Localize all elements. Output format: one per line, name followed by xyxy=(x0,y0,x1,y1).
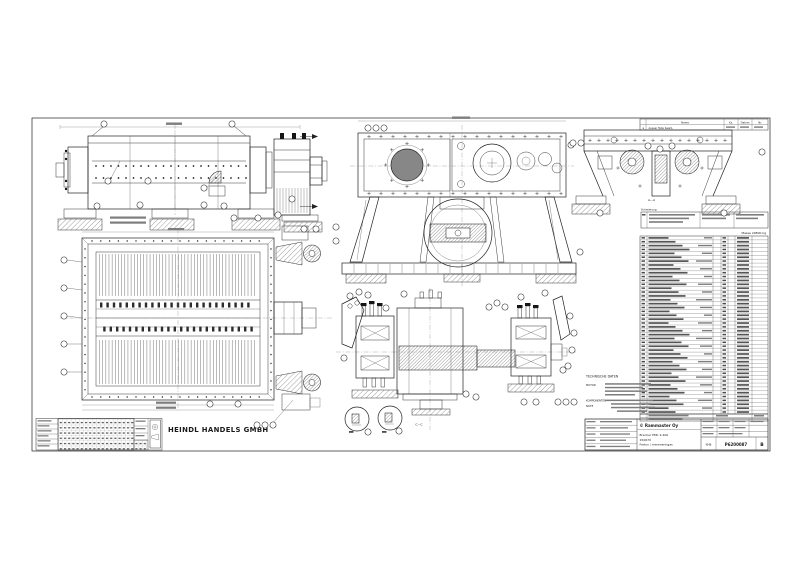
view-section-aa: Name Kz. Datum Nr. a Ausser Teile bearb. xyxy=(572,119,768,235)
section-label-cc: C—C xyxy=(415,423,422,427)
view-direction-arrow xyxy=(300,134,318,209)
foundation-pad xyxy=(572,204,610,214)
bearing-housing xyxy=(511,318,551,376)
detail-circle xyxy=(345,407,369,433)
revision-col-name: Name xyxy=(681,120,689,124)
detail-label xyxy=(349,431,354,433)
shaft-opening xyxy=(391,149,423,181)
foundation-pad xyxy=(58,219,102,230)
foundation-pad xyxy=(412,409,450,415)
view-plan xyxy=(60,226,332,410)
product-title: Brecher PMC 2-400 xyxy=(640,433,669,437)
revision-col-datum: Datum xyxy=(741,120,750,124)
notes-note-label: NOTE xyxy=(586,404,594,408)
dimension-text xyxy=(156,402,176,404)
foundation-pad xyxy=(508,384,554,392)
revision-letter: a xyxy=(643,127,645,130)
dimension-text xyxy=(452,117,470,119)
tolerance-grid xyxy=(58,419,134,451)
drawing-number: P6200087 xyxy=(725,442,748,447)
opening-dimension-text xyxy=(110,217,146,219)
dimension-text xyxy=(156,407,176,409)
rotor-shaft xyxy=(477,350,515,367)
company-name: HEINDL HANDELS GMBH xyxy=(168,426,269,434)
revision-letter-main: B xyxy=(760,442,764,448)
notes-components-label: KOMPONENTEN xyxy=(586,398,606,402)
order-number: 150670 xyxy=(640,438,652,442)
view-side-elevation xyxy=(56,123,327,233)
title-block-left: HEINDL HANDELS GMBH xyxy=(36,419,269,451)
opening-dimension-text xyxy=(110,222,146,224)
parts-list xyxy=(640,236,768,421)
title-block-right: © Rammaster Oy Brecher PMC 2-400 150670 … xyxy=(585,419,768,450)
support-bracket xyxy=(342,297,364,348)
view-drive-top xyxy=(342,117,576,288)
notes-motor-label: MOTOR xyxy=(586,383,596,387)
drawing-sheet: Name Kz. Datum Nr. a Ausser Teile bearb. xyxy=(0,0,800,566)
detail-label xyxy=(382,431,387,433)
lubrication-label: Schmierung xyxy=(641,208,657,212)
author-code: KHB xyxy=(706,442,712,446)
foundation-pad xyxy=(536,274,576,283)
drawing-subtitle: Fartun / mereneringas xyxy=(640,442,674,446)
bearing-housing xyxy=(356,316,394,378)
foundation-pad xyxy=(352,390,398,398)
revision-table: Name Kz. Datum Nr. a Ausser Teile bearb. xyxy=(640,119,768,130)
support-leg xyxy=(545,197,572,262)
foundation-pad xyxy=(346,274,386,283)
revision-text: Ausser Teile bearb. xyxy=(649,126,674,130)
section-label-aa: A—A xyxy=(648,198,656,202)
mass-note: Masse 29800 kg xyxy=(742,231,767,235)
projection-symbol xyxy=(150,420,161,448)
motor-cone xyxy=(276,371,302,394)
manufacturer-name: © Rammaster Oy xyxy=(640,423,679,428)
notes-heading: TECHNISCHE DATEN xyxy=(585,375,619,379)
revision-col-nr: Nr. xyxy=(758,120,762,124)
rotor-shaft xyxy=(399,346,477,370)
view-rotor-shaft-section: C—C xyxy=(336,288,576,433)
technical-drawing: Name Kz. Datum Nr. a Ausser Teile bearb. xyxy=(0,0,800,566)
support-leg xyxy=(350,197,379,262)
motor-cone xyxy=(276,242,302,265)
revision-col-kz: Kz. xyxy=(729,120,733,124)
dimension-text xyxy=(166,123,182,125)
dimension-text xyxy=(168,228,184,230)
foundation-pad xyxy=(444,274,480,282)
